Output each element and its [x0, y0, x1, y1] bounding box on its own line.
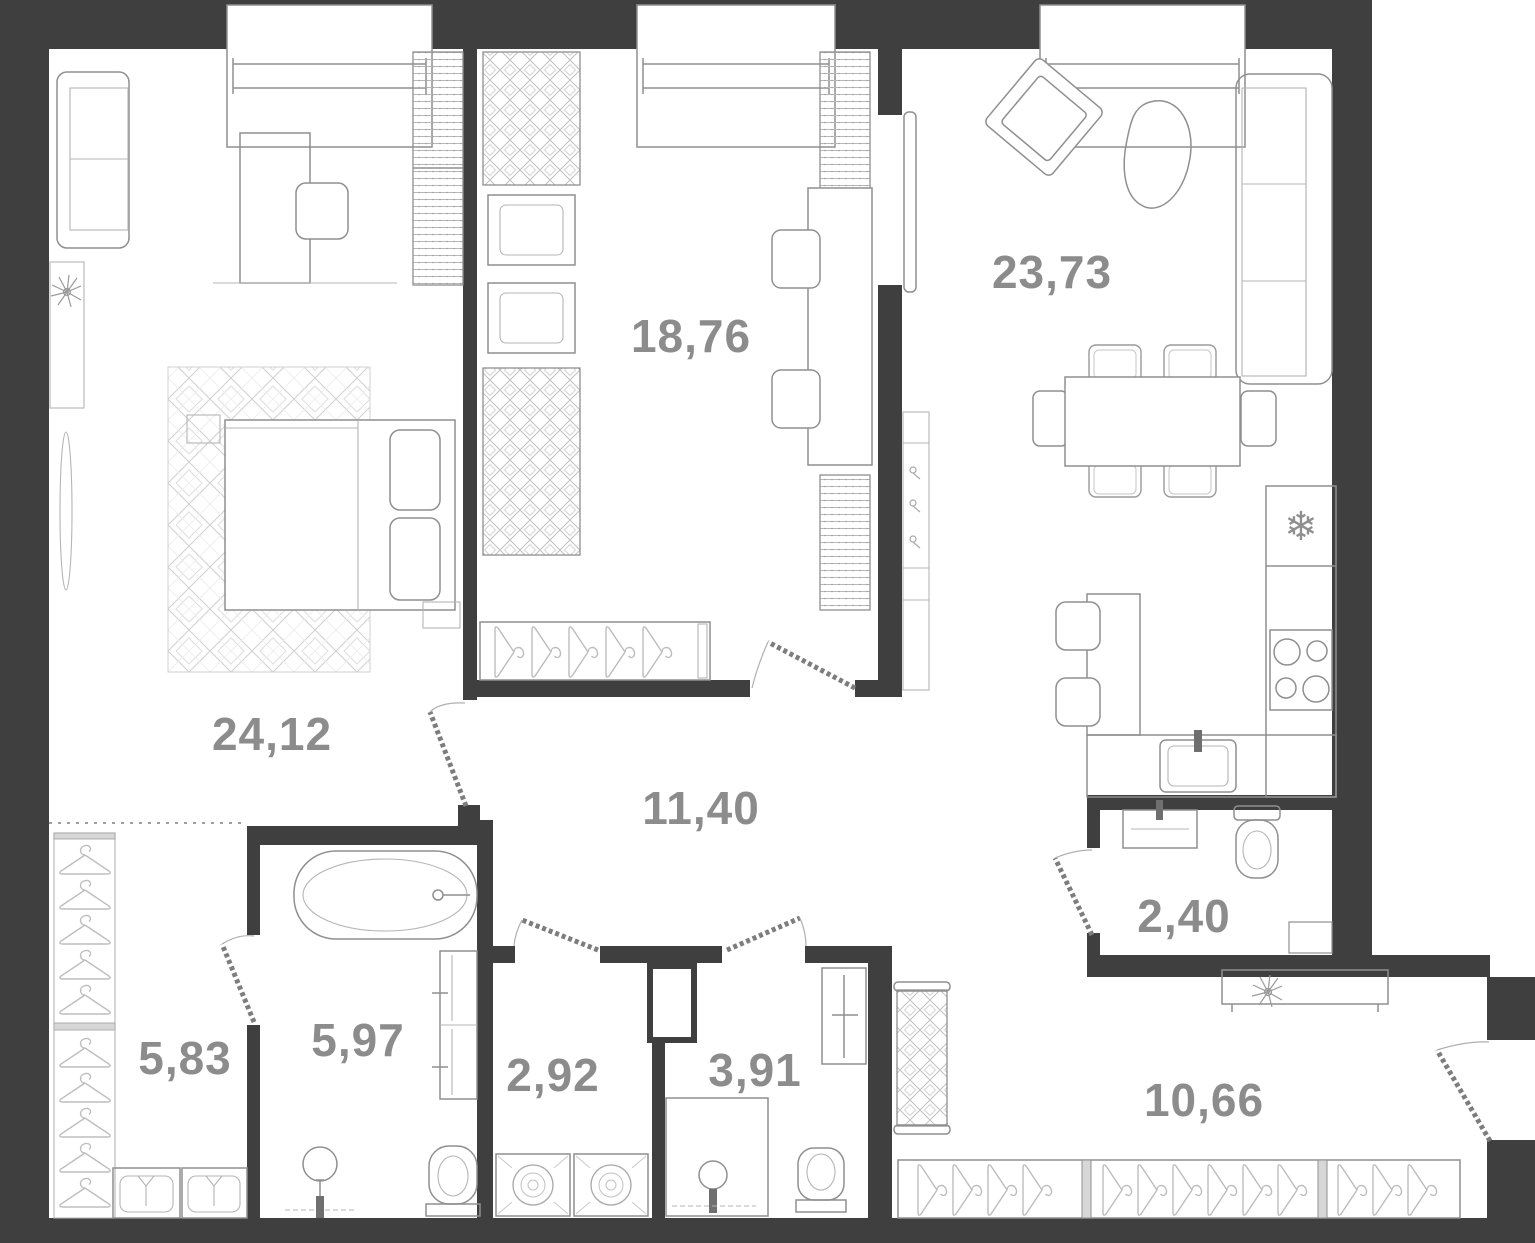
room-label-closet: 5,83	[138, 1032, 232, 1084]
sofa-small	[57, 72, 129, 248]
shaft-void	[653, 969, 691, 1037]
shower-vanity	[666, 1098, 768, 1216]
duct-niche	[1289, 922, 1332, 953]
wall-wc-south	[1087, 955, 1490, 977]
faucet	[1194, 730, 1202, 752]
window-study	[637, 5, 835, 147]
toilet-wc	[1234, 806, 1280, 878]
door-bathroom	[222, 936, 254, 1022]
wall-closet-top	[247, 826, 493, 845]
room-label-hallway: 11,40	[642, 782, 760, 834]
cabinet-column	[483, 52, 580, 555]
wall-wc-west-b	[1087, 933, 1100, 955]
door-guest-wc	[1055, 850, 1092, 935]
door-shower-wc	[727, 918, 806, 950]
wall-bottom	[0, 1218, 1535, 1243]
wall-shower-east	[868, 948, 892, 1218]
floor-mirror	[60, 432, 72, 590]
door-study	[752, 642, 855, 688]
kitchen-sink	[1160, 730, 1236, 792]
washer	[496, 1154, 570, 1216]
wall-closet-bath-a	[247, 845, 260, 935]
toilet-shower-room	[796, 1148, 846, 1212]
wall-study-south-a	[463, 680, 750, 697]
cooktop	[1270, 630, 1332, 710]
room-label-living: 23,73	[992, 246, 1112, 298]
bathtub	[294, 851, 477, 939]
wall-wc-west-a	[1087, 810, 1100, 848]
fridge: ❄	[1284, 505, 1318, 549]
wardrobe-strip-top	[820, 52, 870, 200]
wall-laundry-top-a	[493, 946, 515, 963]
snowflake-icon: ❄	[1284, 505, 1318, 549]
room-label-bathroom: 5,97	[311, 1014, 405, 1066]
door-laundry	[514, 920, 598, 950]
wall-entry-right-top	[1487, 977, 1535, 1040]
bath-sink	[285, 1147, 356, 1218]
room-label-shower: 3,91	[708, 1044, 802, 1096]
floor-plan-page: ❄	[0, 0, 1535, 1243]
bath-cabinet	[432, 951, 477, 1099]
room-label-bedroom: 24,12	[212, 708, 332, 760]
room-label-study: 18,76	[631, 310, 751, 362]
towel-radiator	[822, 968, 866, 1064]
wardrobe-strip-mid	[820, 475, 870, 610]
wall-bath-east	[477, 820, 493, 1218]
door-bedroom	[430, 703, 466, 806]
dining-table	[1033, 345, 1276, 497]
door-entrance	[1437, 1042, 1490, 1141]
closet-rail	[54, 833, 115, 1218]
closet-shelves	[113, 1168, 247, 1218]
wall-right-upper	[1332, 0, 1372, 977]
desk-study	[772, 188, 872, 465]
sliding-glass-door	[904, 112, 916, 292]
wardrobe-hangers-study	[480, 622, 710, 680]
wall-laundry-top-b	[600, 946, 722, 963]
hall-radiator	[894, 982, 950, 1134]
doors-layer	[222, 642, 1490, 1141]
bed	[225, 420, 455, 610]
desk-chair	[296, 183, 348, 239]
wall-study-living-b	[878, 285, 902, 690]
entry-wardrobe	[898, 1160, 1460, 1218]
coat-rack-column	[903, 412, 929, 690]
window-bedroom	[227, 5, 432, 147]
bar-stool-1	[1056, 602, 1100, 650]
toilet-bathroom	[426, 1146, 480, 1216]
room-label-laundry: 2,92	[506, 1049, 600, 1101]
dryer	[574, 1154, 648, 1216]
wardrobe-hatched	[413, 52, 463, 285]
wall-bedroom-study	[463, 49, 477, 700]
sofa-large	[1236, 74, 1332, 384]
wall-closet-bath-b	[247, 1025, 260, 1218]
floor-plan-canvas: ❄	[0, 0, 1535, 1243]
wall-study-living-a	[878, 49, 902, 115]
wall-laundry-shower	[652, 1043, 665, 1218]
wall-left	[0, 0, 49, 1243]
room-label-entry: 10,66	[1144, 1074, 1264, 1126]
plant-console	[50, 262, 84, 408]
room-label-wc: 2,40	[1137, 890, 1231, 942]
wall-entry-right-bottom	[1487, 1140, 1535, 1243]
bar-stool-2	[1056, 678, 1100, 726]
